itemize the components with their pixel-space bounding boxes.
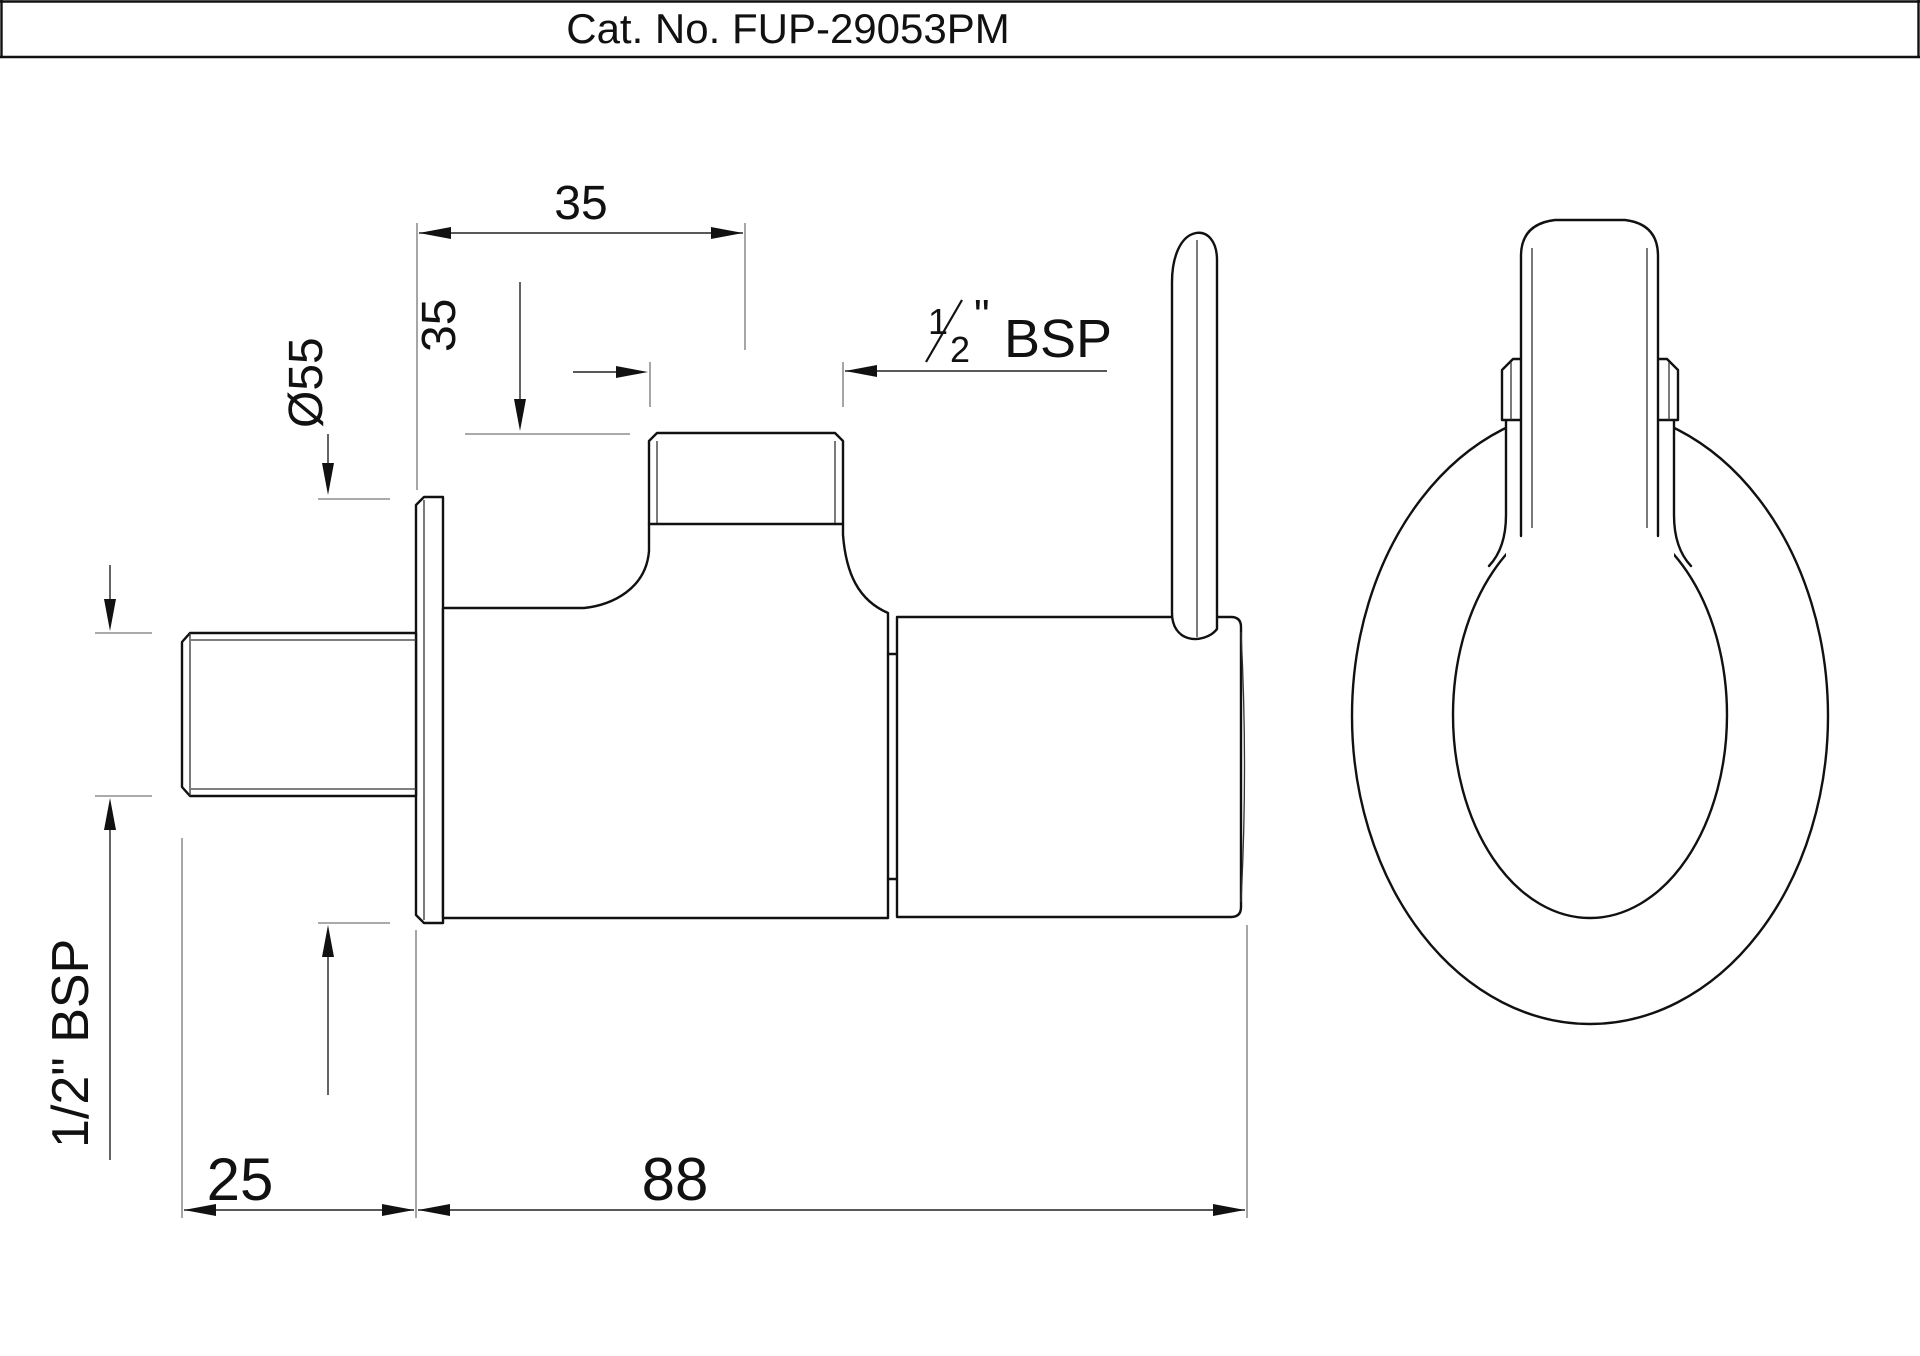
catalog-number-title: Cat. No. FUP-29053PM [566,5,1010,52]
dimension-value: 35 [413,299,466,352]
front-view [1352,220,1828,1024]
arrowhead-down [104,599,116,631]
dimension-port-height: 35 [413,282,630,434]
arrowhead-left-88 [418,1204,450,1216]
lever-handle-front-fill [1521,220,1658,538]
arrowhead-right-25 [382,1204,414,1216]
valve-body [443,433,888,918]
arrowhead-down [514,399,526,431]
arrowhead-down [322,463,334,495]
dimension-value: 1/2" BSP [42,939,100,1148]
dimension-inlet-thread: 1/2" BSP [42,565,152,1160]
drawing-sheet: Cat. No. FUP-29053PM [0,0,1920,1356]
wall-flange-side [416,497,443,923]
inch-quote: " [974,291,990,340]
arrowhead-up [322,925,334,957]
fraction-denominator: 2 [950,329,970,370]
dimension-outlet-thread: 1 2 " BSP [843,291,1112,407]
thread-unit: BSP [1004,309,1112,369]
lever-handle-side [1172,233,1217,639]
inlet-pipe [182,633,416,796]
arrowhead-up [104,798,116,830]
technical-drawing-canvas: Cat. No. FUP-29053PM [0,0,1920,1356]
arrowhead-left [419,227,451,239]
dimension-value-88: 88 [642,1146,709,1213]
arrowhead-right-88 [1213,1204,1245,1216]
body-dome-front [1453,512,1727,918]
title-block: Cat. No. FUP-29053PM [0,0,1920,57]
fraction-numerator: 1 [928,301,948,342]
arrowhead-left [845,365,877,377]
arrowhead-right [616,366,648,378]
dimension-value: Ø55 [280,337,333,428]
dimension-value-25: 25 [207,1146,274,1213]
dimension-value: 35 [554,177,607,230]
outlet-cylinder [897,617,1241,917]
port-left-reference-arrow [573,362,650,407]
arrowhead-right [711,227,743,239]
